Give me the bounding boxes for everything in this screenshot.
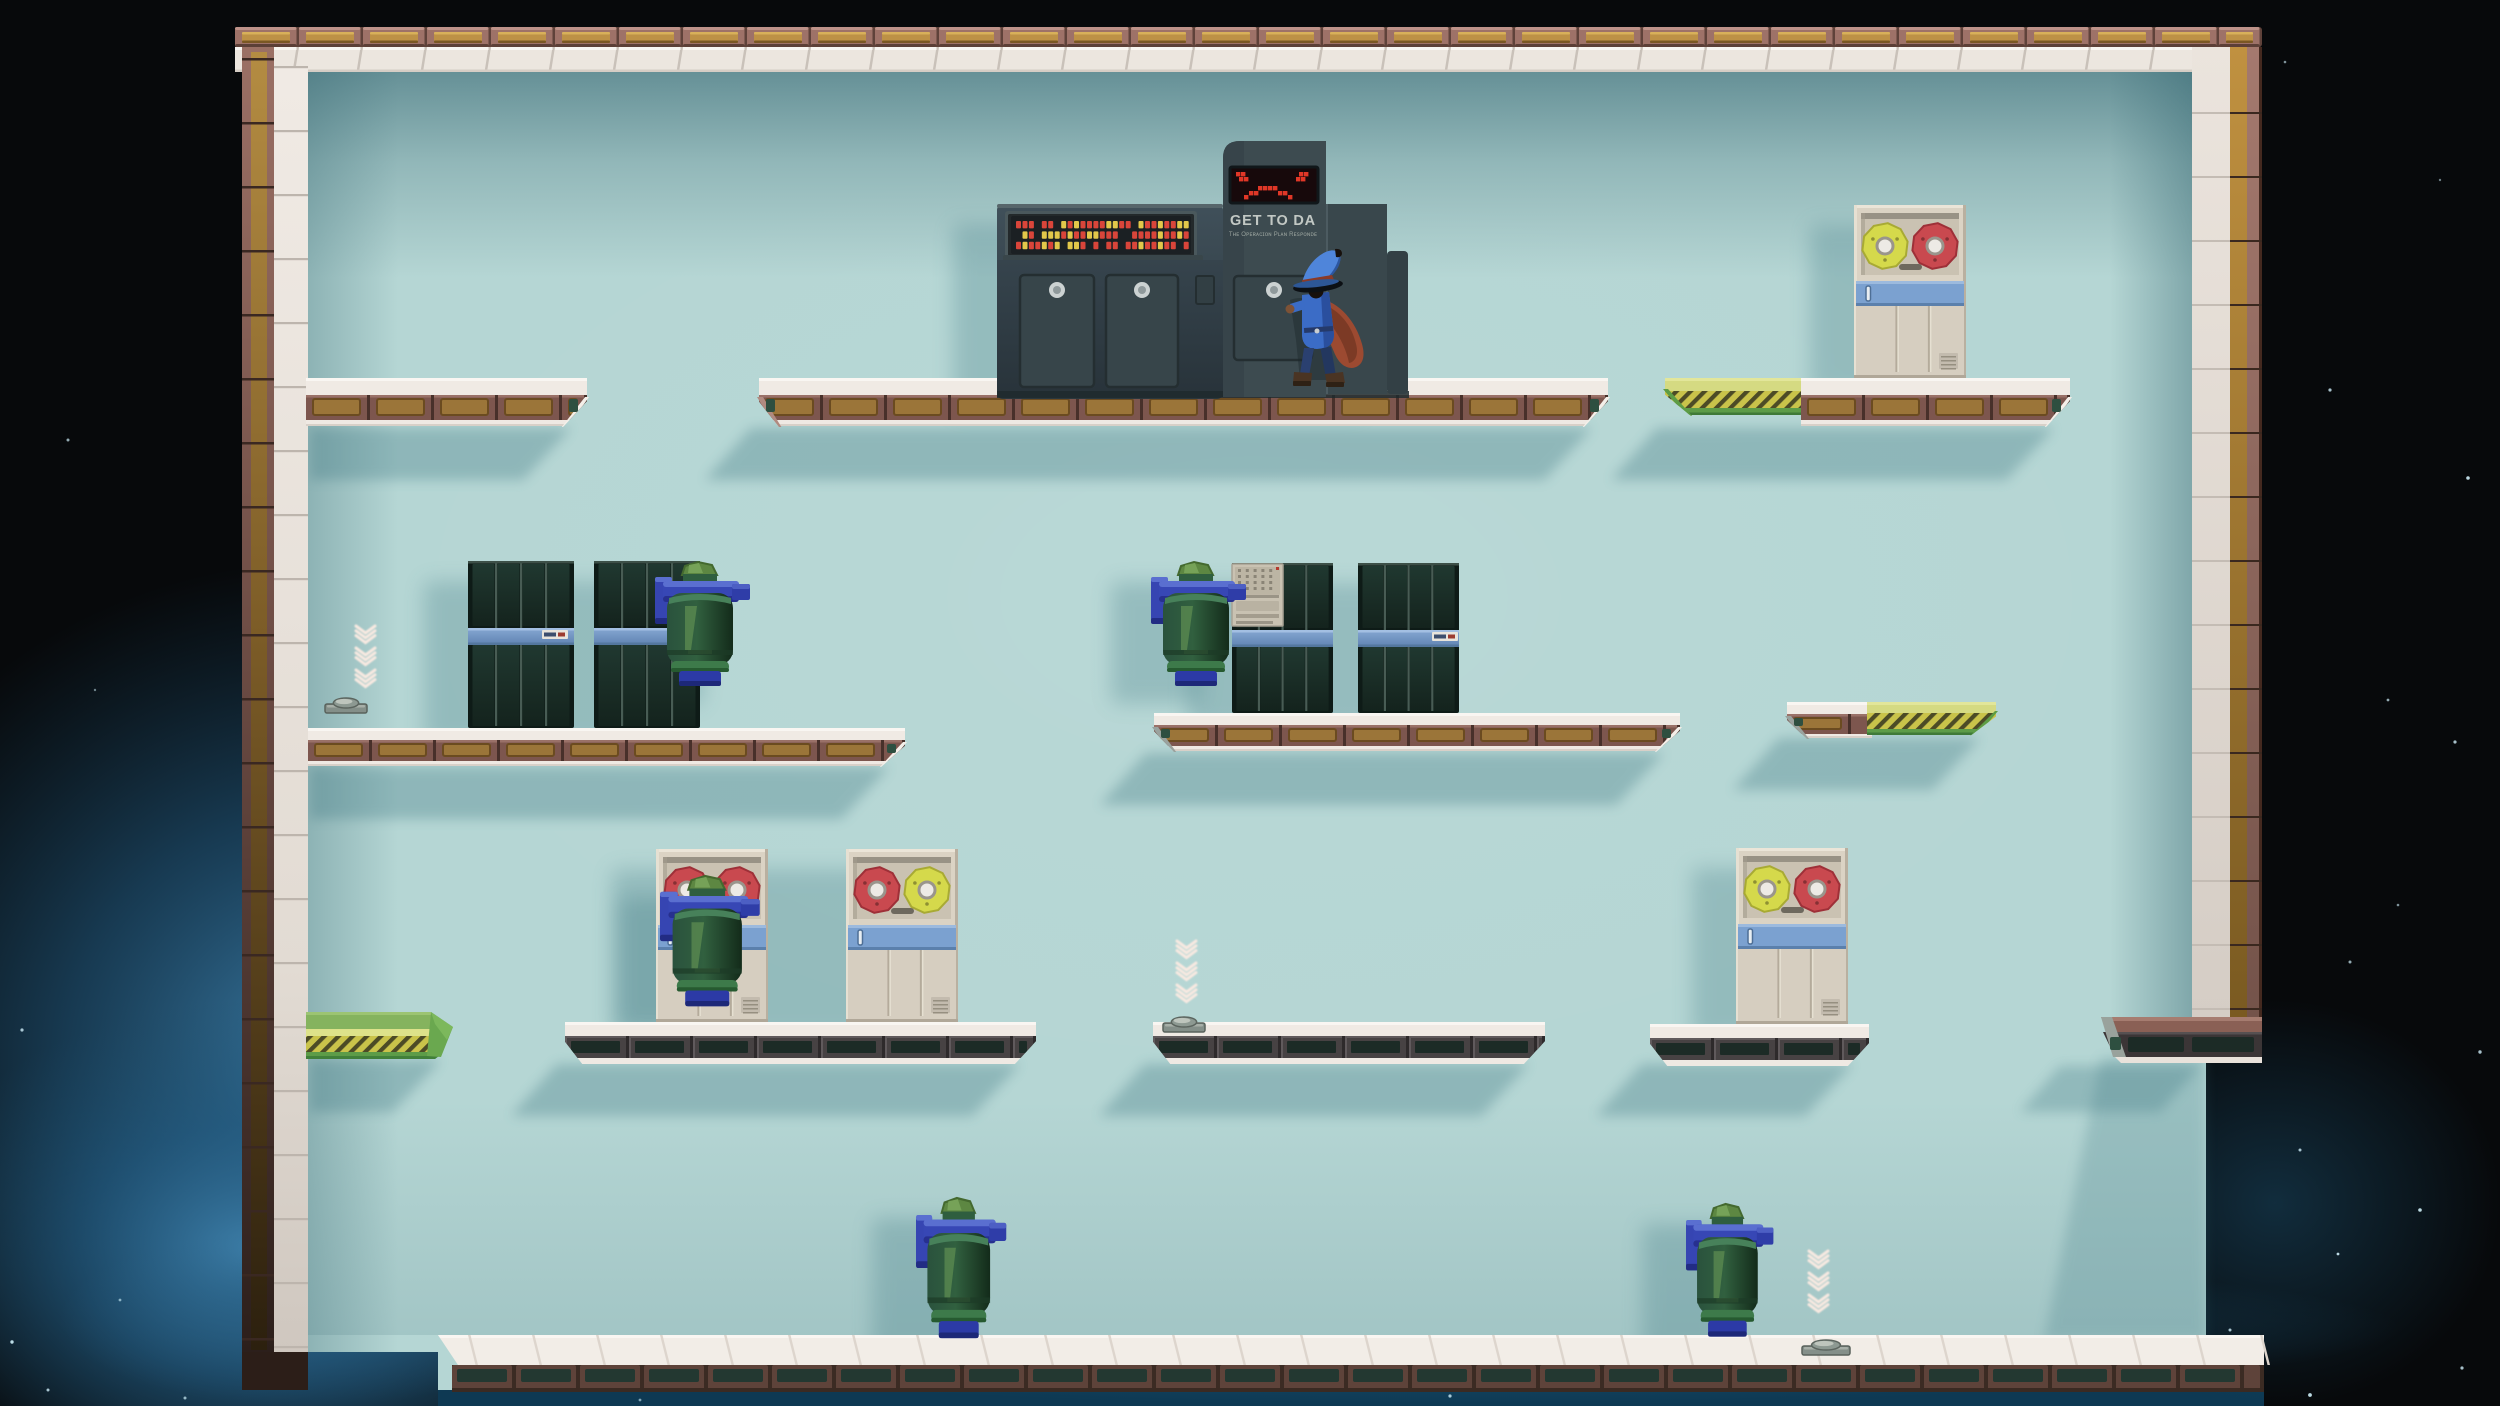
svg-text:Tʜᴇ Oᴘᴇʀᴀᴄɪᴏɴ Pʟᴀɴ Rᴇꜱᴘᴏɴᴅᴇ: Tʜᴇ Oᴘᴇʀᴀᴄɪᴏɴ Pʟᴀɴ Rᴇꜱᴘᴏɴᴅᴇ <box>1229 232 1317 238</box>
svg-text:GET TO DA: GET TO DA <box>1230 213 1316 229</box>
